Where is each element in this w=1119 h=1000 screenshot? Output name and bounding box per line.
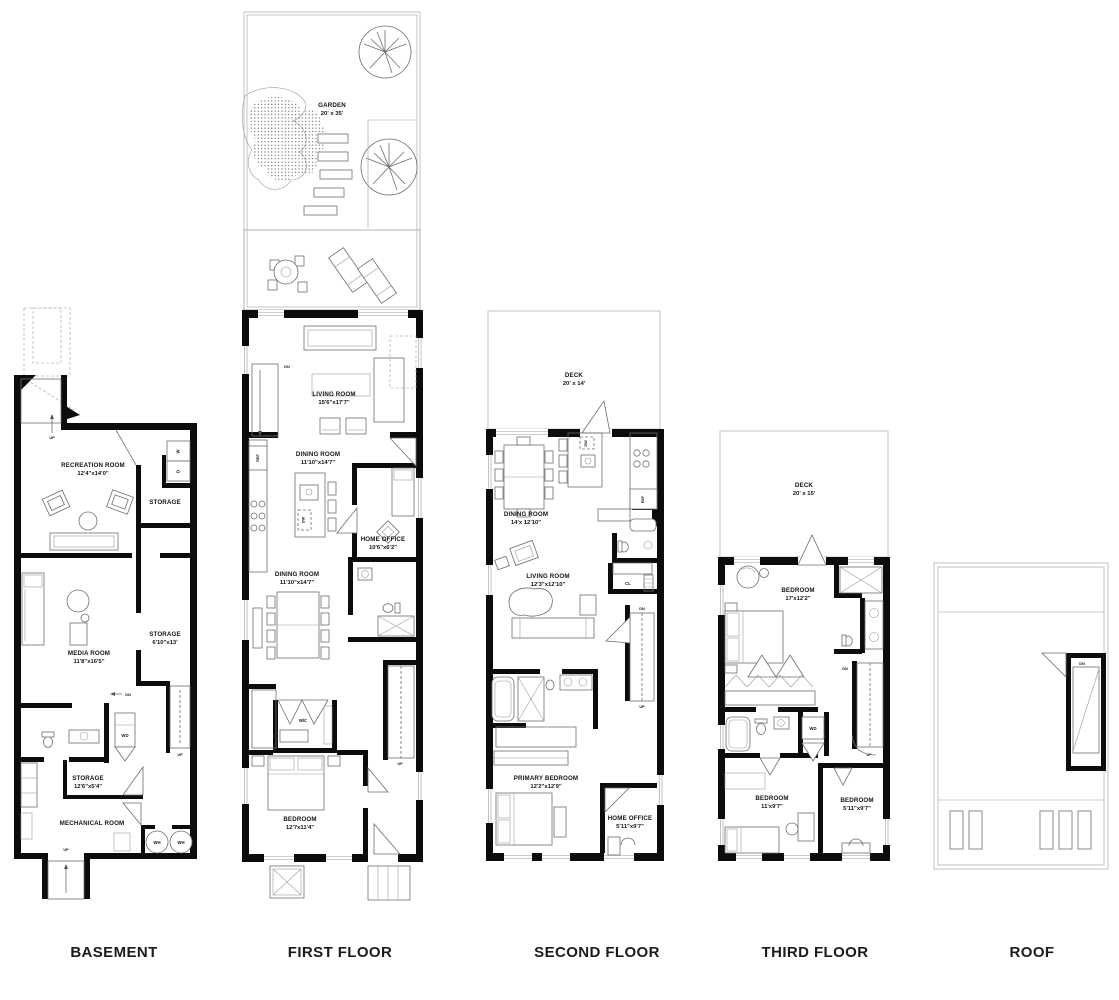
room-label-home-office: HOME OFFICE [608, 815, 653, 822]
room-label-recreation: RECREATION ROOM [61, 462, 125, 469]
patio-table-set [268, 256, 307, 292]
room-label-home-office: HOME OFFICE [361, 536, 406, 543]
room-label-deck: DECK [565, 372, 584, 379]
laundry-closet: WD [115, 713, 135, 761]
annotation-ref: REF [256, 454, 260, 462]
primary-bed [496, 793, 566, 845]
floor-title-third: THIRD FLOOR [762, 944, 869, 961]
annotation-up: UP [63, 848, 69, 852]
annotation-cl: CL [625, 581, 631, 586]
first-bedroom-furniture [252, 756, 400, 854]
powder-bath [358, 568, 414, 636]
annotation-up: UP [639, 705, 645, 709]
floorplan-sheet: UP W D DN UP WD [0, 0, 1119, 1000]
room-dims-bedroom-large: 17'x12'2" [785, 596, 810, 602]
annotation-wd: WD [809, 726, 816, 731]
room-label-bedroom: BEDROOM [283, 816, 316, 823]
living-furniture [495, 540, 596, 638]
windows [486, 401, 664, 861]
tree-icon [359, 26, 411, 78]
home-office-furniture [337, 468, 414, 543]
room-dims-primary: 12'2"x12'9" [530, 784, 562, 790]
room-dims-recreation: 12'4"x14'0" [77, 471, 109, 477]
room-dims-dining-lower: 11'10"x14'7" [280, 580, 314, 586]
room-dims-storage-mid: 6'10"x13' [152, 640, 178, 646]
room-dims-home-office: 10'6"x6'2" [369, 545, 397, 551]
annotation-dn: DN [125, 693, 131, 697]
room-label-storage-lower: STORAGE [72, 775, 104, 782]
room-label-living: LIVING ROOM [312, 391, 355, 398]
hall-closet: CL [613, 563, 653, 591]
basement-floorplan: UP W D DN UP WD [14, 305, 204, 905]
garden [242, 12, 420, 310]
third-floorplan: WD DN UP DECK 20' x 15' BEDROOM 17'x12'2… [714, 425, 894, 865]
room-dims-deck: 20' x 15' [793, 491, 816, 497]
annotation-dw: DW [302, 516, 306, 523]
bush-icon [249, 97, 327, 181]
room-label-storage-mid: STORAGE [149, 631, 181, 638]
room-dims-deck: 20' x 14' [563, 381, 586, 387]
annotation-dn: DN [842, 667, 848, 671]
room-label-garden: GARDEN [318, 102, 346, 109]
annotation-wd: WD [121, 733, 128, 738]
floor-title-basement: BASEMENT [70, 944, 157, 961]
bedroom-small-furniture [842, 839, 870, 853]
annotation-wh: WH [153, 840, 160, 845]
room-label-dining-lower: DINING ROOM [275, 571, 319, 578]
stairs-bottom: UP [48, 848, 84, 899]
room-label-dining-upper: DINING ROOM [296, 451, 340, 458]
hall-bath [618, 519, 656, 552]
front-stoop [270, 866, 410, 900]
room-label-mechanical: MECHANICAL ROOM [60, 820, 125, 827]
media-furniture [22, 573, 89, 645]
room-label-dining: DINING ROOM [504, 511, 548, 518]
floor-title-first: FIRST FLOOR [288, 944, 392, 961]
annotation-up: UP [397, 762, 403, 766]
living-room-furniture [304, 326, 416, 434]
basement-bathroom [42, 730, 99, 748]
windows [718, 535, 890, 861]
water-heaters: WH WH [146, 831, 192, 853]
skylights [950, 811, 1091, 849]
bedroom-mid-furniture [725, 773, 814, 853]
room-dims-bedroom: 12'7x11'4" [286, 825, 314, 831]
annotation-dn: DN [397, 660, 403, 664]
stairs-up-center: UP [252, 684, 276, 748]
dining-lower-furniture [253, 592, 329, 659]
room-dims-living: 15'6"x17'7" [318, 400, 350, 406]
room-label-bedroom-small: BEDROOM [840, 797, 873, 804]
room-dims-living: 12'3"x12'10" [531, 582, 566, 588]
room-dims-dining-upper: 11'10"x14'7" [301, 460, 335, 466]
annotation-up: UP [261, 684, 267, 688]
deck-tiles [488, 311, 660, 429]
annotation-dw: DW [584, 440, 588, 447]
room-label-media: MEDIA ROOM [68, 650, 110, 657]
wc-room: W/C [278, 700, 332, 744]
room-dims-storage-lower: 12'6"x5'4" [74, 784, 102, 790]
annotation-up: UP [177, 753, 183, 757]
stairs: DN UP [842, 663, 883, 757]
annotation-dn: DN [284, 365, 290, 369]
stairs: DN UP [606, 607, 654, 709]
room-dims-bedroom-small: 5'11"x9'7" [843, 806, 871, 812]
dining-furniture [495, 437, 553, 517]
second-floorplan: DW REF CL DN UP [484, 305, 664, 865]
room-dims-bedroom-mid: 11'x9'7" [761, 804, 783, 810]
stairs-up-entry: UP [21, 379, 61, 440]
annotation-up: UP [49, 436, 55, 440]
annotation-wc: W/C [299, 718, 307, 723]
room-dims-dining: 14'x 12'10" [511, 520, 541, 526]
floor-title-roof: ROOF [1010, 944, 1055, 961]
room-label-living: LIVING ROOM [526, 573, 569, 580]
stairs-right: DN UP [388, 660, 414, 766]
washer-dryer-stack: W D [167, 441, 190, 481]
room-label-primary: PRIMARY BEDROOM [514, 775, 578, 782]
floor-title-second: SECOND FLOOR [534, 944, 660, 961]
annotation-ref: REF [641, 495, 645, 503]
kitchen: DW REF [559, 433, 657, 521]
annotation-dn: DN [1079, 662, 1085, 666]
room-dims-garden: 20' x 35' [321, 111, 344, 117]
annotation-dn: DN [639, 607, 645, 611]
third-floor-walls [718, 557, 890, 861]
roof-plan: DN [930, 555, 1110, 875]
room-label-storage-upper: STORAGE [149, 499, 181, 506]
annotation-dryer: D [176, 470, 181, 473]
recreation-furniture [42, 490, 133, 550]
hall-bath [726, 717, 789, 775]
room-label-bedroom-mid: BEDROOM [755, 795, 788, 802]
room-label-bedroom-large: BEDROOM [781, 587, 814, 594]
primary-bath [492, 675, 592, 721]
stairs-mid: UP [170, 686, 190, 757]
first-floorplan: DN REF DW [240, 8, 425, 903]
annotation-wh: WH [177, 840, 184, 845]
room-dims-home-office: 5'11"x9'7" [616, 824, 644, 830]
bedroom-stairs-closet [494, 727, 576, 765]
room-label-deck: DECK [795, 482, 814, 489]
stair-bulkhead: DN [1042, 653, 1106, 771]
room-dims-media: 11'8"x16'5" [74, 659, 105, 665]
tree-icon [361, 139, 417, 195]
stairs-dn-left: DN [252, 364, 290, 436]
bedroom-large-furniture [725, 566, 783, 673]
